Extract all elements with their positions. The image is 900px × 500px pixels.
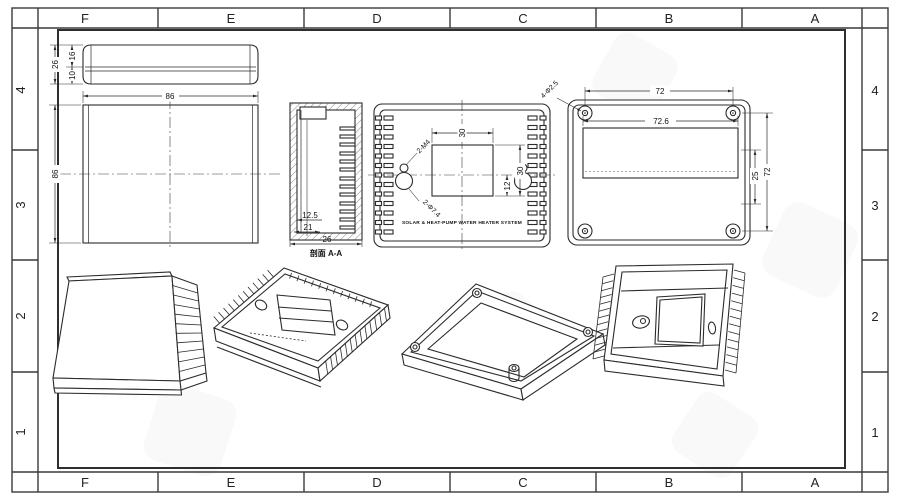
cover-display-window (277, 295, 335, 335)
iso-front-cover (214, 268, 390, 387)
section-top-boss (300, 107, 326, 119)
box-front-face (53, 276, 180, 381)
zone-row-label: 4 (871, 83, 878, 98)
cover2-display-window (655, 294, 705, 346)
dim-86-height: 86 (51, 169, 60, 178)
dim-21: 21 (304, 223, 313, 232)
brand-text: SOLAR & HEAT-PUMP WATER HEATER SYSTEM (402, 220, 522, 226)
zone-col-label: E (227, 11, 236, 26)
section-label: 剖面 A-A (310, 248, 343, 258)
iso-closed-box (53, 272, 207, 395)
zone-col-label: A (811, 11, 820, 26)
zone-numbers-right: 4 3 2 1 (871, 83, 878, 440)
zone-col-label: C (518, 11, 527, 26)
dim-hole-span-h: 72 (656, 87, 665, 96)
drawing-canvas: F E D C B A F E D C B A 4 3 2 1 4 3 2 1 (0, 0, 900, 500)
dim-window-height: 25 (751, 171, 760, 180)
zone-col-label: C (518, 475, 527, 490)
cover-edge-view (83, 45, 258, 84)
zone-col-label: F (81, 475, 89, 490)
callout-4-d2-5: 4-Φ2.5 (540, 80, 560, 100)
zone-row-label: 3 (871, 198, 878, 213)
view-back: 72 72.6 25 72 4-Φ2.5 (540, 80, 773, 245)
dim-26-overall: 26 (323, 235, 332, 244)
zone-col-label: D (372, 475, 381, 490)
dim-window-height: 30 (516, 166, 525, 175)
zone-row-label: 4 (13, 86, 28, 93)
zone-row-label: 2 (13, 312, 28, 319)
zone-col-label: D (372, 11, 381, 26)
zone-row-label: 2 (871, 309, 878, 324)
zone-numbers-left: 4 3 2 1 (13, 86, 28, 435)
dim-10: 10 (68, 71, 77, 80)
dim-hole-span-v: 72 (763, 167, 772, 176)
view-section-aa: 12.5 21 26 剖面 A-A (290, 103, 362, 258)
dim-window-width: 72.6 (653, 117, 669, 126)
zone-col-label: A (811, 475, 820, 490)
watermark (140, 27, 864, 483)
iso-cover-angled (593, 264, 745, 386)
view-cover-orthographic: 26 16 10 86 86 (49, 45, 283, 250)
dim-12-5: 12.5 (302, 211, 318, 220)
dim-16: 16 (68, 51, 77, 60)
zone-col-label: B (665, 475, 674, 490)
zone-row-label: 3 (13, 201, 28, 208)
zone-col-label: E (227, 475, 236, 490)
dim-window-width: 30 (458, 128, 467, 137)
zone-row-label: 1 (871, 425, 878, 440)
dim-center-offset: 12 (503, 181, 512, 190)
iso-base-tray (402, 284, 605, 400)
zone-col-label: F (81, 11, 89, 26)
dim-26: 26 (51, 60, 60, 69)
zone-col-label: B (665, 11, 674, 26)
dim-86-width: 86 (166, 92, 175, 101)
view-front-face: 2-M4 2-Φ7.4 30 30 12 SOLAR & HEAT-PUMP W… (368, 100, 556, 250)
zone-row-label: 1 (13, 428, 28, 435)
drawing-sheet: F E D C B A F E D C B A 4 3 2 1 4 3 2 1 (0, 0, 900, 500)
